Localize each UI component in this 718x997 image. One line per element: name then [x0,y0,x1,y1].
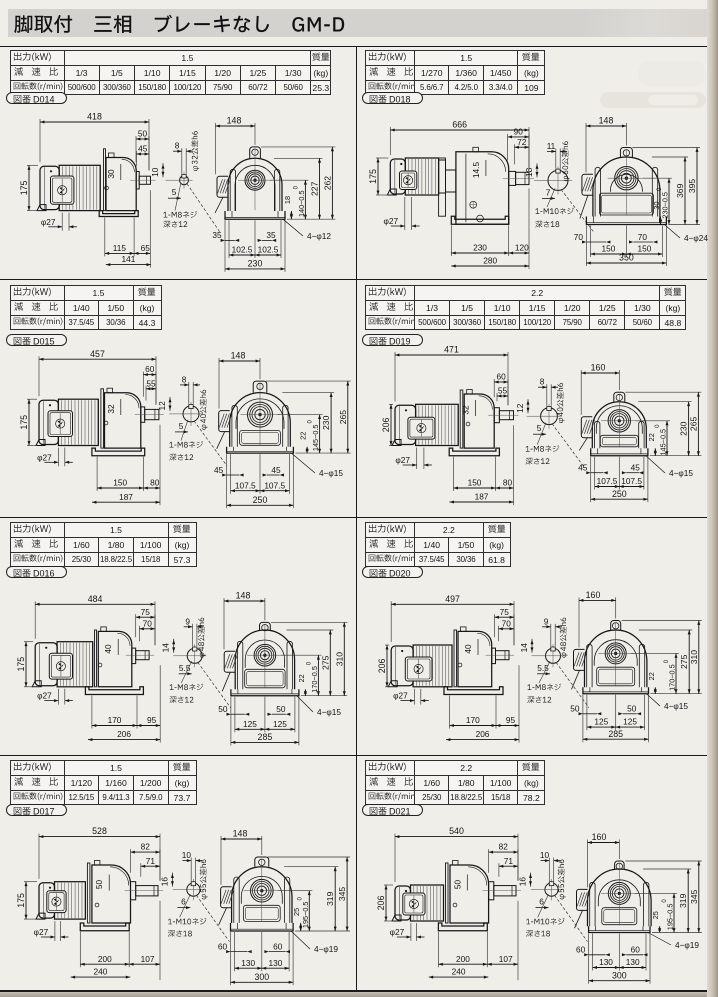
svg-text:75: 75 [141,607,151,617]
svg-text:471: 471 [444,345,459,355]
svg-text:25: 25 [651,911,660,919]
svg-text:φ27: φ27 [383,216,398,226]
svg-text:130: 130 [599,957,613,967]
svg-text:φ27: φ27 [37,691,52,701]
svg-text:528: 528 [92,826,107,836]
svg-text:40: 40 [463,644,473,654]
svg-text:9: 9 [544,616,549,626]
svg-text:5.5: 5.5 [179,663,191,673]
svg-text:170−0.5: 170−0.5 [310,666,319,693]
svg-text:55: 55 [146,378,156,388]
svg-text:10: 10 [182,850,192,860]
svg-text:8: 8 [540,377,545,387]
svg-text:175: 175 [16,893,26,908]
svg-text:140−0.5: 140−0.5 [297,190,306,217]
svg-text:10: 10 [540,850,550,860]
svg-text:14: 14 [519,643,529,653]
svg-text:107: 107 [141,954,155,964]
svg-text:32: 32 [106,404,116,414]
svg-text:230: 230 [321,415,331,430]
svg-text:170−0.5: 170−0.5 [668,664,677,691]
svg-text:35: 35 [212,230,222,240]
svg-text:70: 70 [638,232,648,242]
svg-text:175: 175 [16,657,26,672]
svg-text:160: 160 [592,832,607,842]
svg-text:148: 148 [227,115,242,125]
svg-text:14.5: 14.5 [471,162,481,179]
svg-text:45: 45 [578,463,588,473]
svg-text:130: 130 [241,958,255,968]
svg-text:14: 14 [161,643,171,653]
svg-text:275: 275 [679,654,689,669]
svg-text:30: 30 [106,169,116,179]
svg-text:265: 265 [338,410,348,425]
svg-text:45: 45 [631,463,641,473]
svg-text:50: 50 [276,704,286,714]
svg-text:125: 125 [623,717,637,727]
svg-text:18: 18 [524,167,534,177]
svg-text:240: 240 [452,967,466,977]
svg-text:206: 206 [476,729,490,739]
svg-text:10: 10 [150,167,160,177]
svg-text:12: 12 [515,403,525,413]
svg-text:310: 310 [334,652,344,667]
svg-text:148: 148 [233,828,248,838]
svg-text:285: 285 [258,732,273,742]
svg-text:0: 0 [655,424,661,428]
svg-text:187: 187 [119,492,133,502]
svg-text:102.5: 102.5 [232,245,253,255]
svg-text:319: 319 [325,891,335,906]
svg-text:φ27: φ27 [41,217,56,227]
svg-text:115: 115 [113,243,127,253]
svg-text:150: 150 [601,244,615,254]
svg-text:107.5: 107.5 [597,476,618,486]
svg-text:φ27: φ27 [395,455,410,465]
svg-text:72: 72 [517,137,527,147]
svg-text:345: 345 [689,889,699,904]
svg-text:80: 80 [150,478,160,488]
svg-text:230−0.5: 230−0.5 [661,192,670,219]
svg-text:148: 148 [599,115,614,125]
svg-text:200: 200 [98,954,112,964]
svg-text:125: 125 [594,717,608,727]
svg-text:145−0.5: 145−0.5 [659,429,668,456]
svg-text:540: 540 [449,826,464,836]
svg-text:150: 150 [468,478,482,488]
svg-text:70: 70 [502,618,512,628]
svg-text:250: 250 [253,495,268,505]
svg-text:18: 18 [283,196,292,204]
svg-text:40: 40 [103,644,113,654]
svg-text:70: 70 [574,232,584,242]
svg-text:35: 35 [266,230,276,240]
svg-text:45: 45 [138,144,148,154]
svg-text:230: 230 [248,259,263,269]
svg-text:0: 0 [293,185,299,189]
svg-text:4−φ15: 4−φ15 [669,468,693,478]
svg-text:280: 280 [483,256,497,266]
svg-text:0: 0 [308,419,314,423]
svg-text:70: 70 [143,618,153,628]
svg-text:82: 82 [141,842,151,852]
svg-text:175: 175 [19,415,29,430]
svg-text:230: 230 [473,243,487,253]
svg-text:250: 250 [612,489,627,499]
svg-text:206: 206 [117,729,131,739]
svg-text:50: 50 [94,880,104,890]
svg-text:0: 0 [306,661,312,665]
svg-text:200: 200 [456,954,470,964]
svg-text:25: 25 [292,908,301,916]
svg-text:4−φ19: 4−φ19 [675,940,699,950]
svg-text:71: 71 [504,856,514,866]
svg-text:150: 150 [637,244,651,254]
svg-text:0: 0 [664,659,670,663]
svg-text:170: 170 [466,715,480,725]
svg-text:60: 60 [273,941,283,951]
svg-text:60: 60 [496,372,506,382]
svg-text:22: 22 [647,433,656,441]
svg-text:107.5: 107.5 [264,480,285,490]
svg-text:497: 497 [445,594,460,604]
svg-text:285: 285 [608,729,623,739]
svg-text:50: 50 [570,704,580,714]
svg-text:82: 82 [499,842,509,852]
svg-text:71: 71 [146,856,156,866]
svg-text:5: 5 [172,187,177,197]
svg-text:7: 7 [546,187,551,197]
svg-text:φ27: φ27 [393,691,408,701]
svg-text:22: 22 [647,672,656,680]
svg-text:170: 170 [108,715,122,725]
svg-text:310: 310 [689,650,699,665]
svg-text:60: 60 [631,945,641,955]
svg-text:50: 50 [138,129,148,139]
svg-text:80: 80 [503,478,513,488]
svg-text:175: 175 [19,180,29,195]
svg-text:141: 141 [121,254,135,264]
svg-text:125: 125 [273,719,287,729]
svg-text:120: 120 [515,243,529,253]
svg-text:275: 275 [320,655,330,670]
svg-text:12: 12 [157,401,167,411]
svg-text:90: 90 [514,127,524,137]
svg-text:50: 50 [218,704,228,714]
svg-text:175: 175 [368,169,378,184]
svg-text:45: 45 [271,465,281,475]
svg-text:125: 125 [243,719,257,729]
svg-text:4−φ15: 4−φ15 [317,707,341,717]
svg-text:300: 300 [254,972,269,982]
svg-text:187: 187 [475,492,489,502]
svg-text:666: 666 [452,120,467,130]
svg-text:107: 107 [499,954,513,964]
svg-text:206: 206 [377,658,387,673]
svg-text:4−φ15: 4−φ15 [319,468,343,478]
svg-text:4−φ15: 4−φ15 [664,701,688,711]
svg-text:22: 22 [297,674,306,682]
svg-text:262: 262 [322,176,332,191]
svg-text:148: 148 [236,590,251,600]
svg-text:160: 160 [591,362,606,372]
svg-text:55: 55 [498,386,508,396]
svg-text:30: 30 [652,201,661,209]
svg-text:206: 206 [376,896,386,911]
svg-text:457: 457 [90,349,105,359]
svg-text:395: 395 [687,179,697,194]
svg-text:240: 240 [93,967,107,977]
svg-text:φ27: φ27 [37,452,52,462]
svg-text:95: 95 [506,715,516,725]
svg-text:418: 418 [87,112,102,122]
svg-text:345: 345 [337,887,347,902]
svg-text:350: 350 [619,253,634,263]
svg-text:195−0.5: 195−0.5 [666,904,675,931]
svg-text:75: 75 [500,607,510,617]
svg-text:5.5: 5.5 [537,663,549,673]
svg-text:5: 5 [537,423,542,433]
svg-text:45: 45 [214,465,224,475]
svg-text:107.5: 107.5 [235,480,256,490]
svg-text:4−φ12: 4−φ12 [307,231,331,241]
svg-text:230: 230 [679,421,689,436]
svg-text:8: 8 [175,141,180,151]
svg-text:11: 11 [547,141,556,151]
svg-text:50: 50 [627,704,637,714]
svg-text:107.5: 107.5 [621,476,642,486]
svg-text:369: 369 [675,183,685,198]
svg-text:130: 130 [268,958,282,968]
svg-text:102.5: 102.5 [258,245,279,255]
svg-text:φ27: φ27 [390,927,405,937]
svg-text:227: 227 [310,181,320,196]
svg-text:300: 300 [612,970,627,980]
svg-text:60: 60 [218,941,228,951]
svg-text:22: 22 [299,432,308,440]
svg-text:16: 16 [159,877,169,887]
svg-text:4−φ24: 4−φ24 [684,233,708,243]
svg-text:65: 65 [141,243,151,253]
svg-text:145−0.5: 145−0.5 [311,425,320,452]
svg-text:148: 148 [231,350,246,360]
svg-text:4−φ19: 4−φ19 [314,944,338,954]
svg-text:5: 5 [179,421,184,431]
svg-text:32: 32 [461,405,471,415]
svg-text:265: 265 [688,417,698,432]
svg-text:319: 319 [678,893,688,908]
svg-text:9: 9 [185,616,190,626]
svg-text:484: 484 [88,594,103,604]
svg-text:206: 206 [381,417,391,432]
svg-text:0: 0 [297,896,303,900]
svg-text:φ27: φ27 [34,927,49,937]
svg-text:60: 60 [576,945,586,955]
svg-text:50: 50 [452,880,462,890]
svg-text:60: 60 [145,364,155,374]
svg-text:16: 16 [518,877,528,887]
svg-text:0: 0 [662,899,668,903]
svg-text:150: 150 [113,478,127,488]
svg-text:95: 95 [147,715,157,725]
svg-text:195−0.5: 195−0.5 [301,902,310,929]
svg-text:130: 130 [626,957,640,967]
svg-text:8: 8 [182,374,187,384]
svg-text:160: 160 [586,590,601,600]
